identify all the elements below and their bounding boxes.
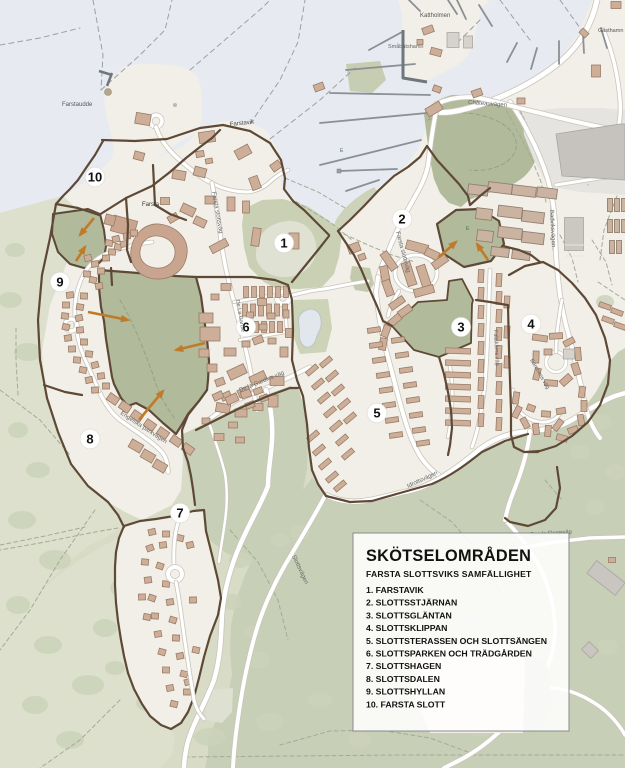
svg-text:Farsta: Farsta [142,202,160,208]
svg-text:7: 7 [176,506,183,521]
svg-text:9: 9 [56,275,63,290]
svg-text:Småbåtshamn: Småbåtshamn [388,43,423,50]
svg-text:2. SLOTTSSTJÄRNAN: 2. SLOTTSSTJÄRNAN [366,598,457,608]
svg-text:1: 1 [280,236,287,251]
svg-text:6. SLOTTSPARKEN OCH TRÄDGÅRDEN: 6. SLOTTSPARKEN OCH TRÄDGÅRDEN [366,649,532,659]
svg-text:8: 8 [86,432,93,447]
svg-text:8. SLOTTSDALEN: 8. SLOTTSDALEN [366,674,440,684]
svg-text:4: 4 [527,317,535,332]
svg-text:Kattholmen: Kattholmen [420,13,450,19]
svg-text:10: 10 [88,170,102,185]
svg-text:5. SLOTTSTERASSEN OCH SLOTTSÄN: 5. SLOTTSTERASSEN OCH SLOTTSÄNGEN [366,636,547,646]
svg-text:2: 2 [398,212,405,227]
svg-text:FARSTA SLOTTSVIKS SAMFÄLLIGHET: FARSTA SLOTTSVIKS SAMFÄLLIGHET [366,569,532,579]
svg-text:3: 3 [457,320,464,335]
svg-text:7. SLOTTSHAGEN: 7. SLOTTSHAGEN [366,661,441,671]
svg-text:3. SLOTTSGLÄNTAN: 3. SLOTTSGLÄNTAN [366,610,452,620]
svg-text:5: 5 [373,406,380,421]
svg-text:1. FARSTAVIK: 1. FARSTAVIK [366,585,424,595]
svg-text:SKÖTSELOMRÅDEN: SKÖTSELOMRÅDEN [366,546,531,565]
svg-text:Gästhamn: Gästhamn [598,28,623,34]
svg-text:4. SLOTTSKLIPPAN: 4. SLOTTSKLIPPAN [366,623,447,633]
svg-text:Farstaudde: Farstaudde [62,102,93,108]
svg-text:9. SLOTTSHYLLAN: 9. SLOTTSHYLLAN [366,687,445,697]
svg-text:10. FARSTA SLOTT: 10. FARSTA SLOTT [366,699,446,709]
